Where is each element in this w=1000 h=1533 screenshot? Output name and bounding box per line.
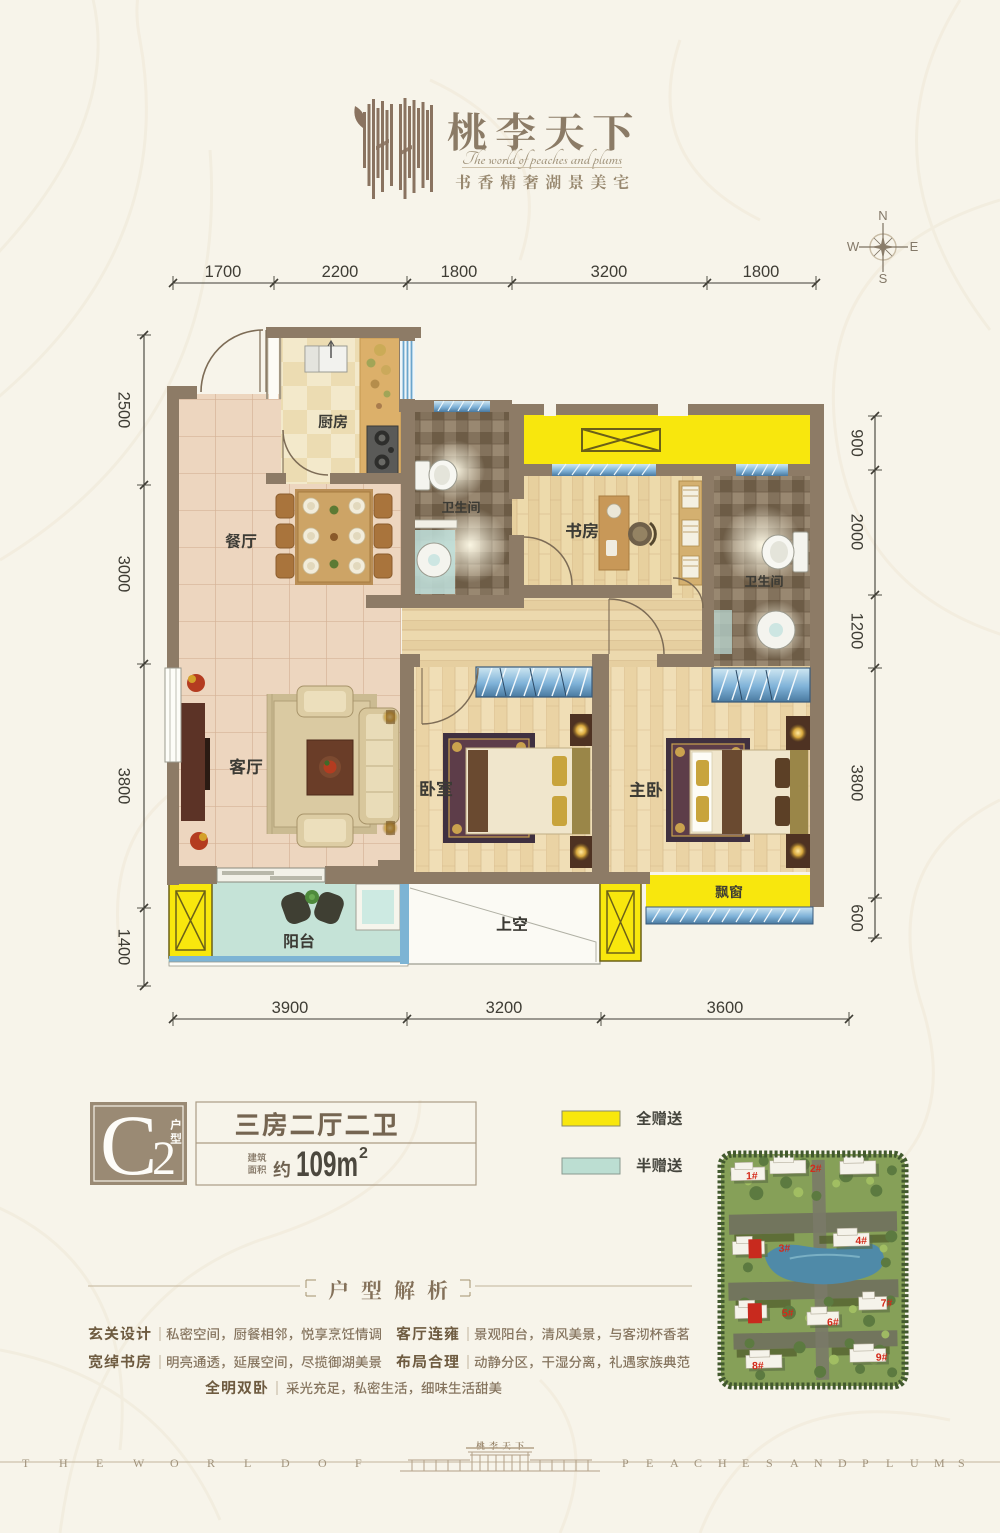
svg-text:A: A: [670, 1456, 679, 1470]
svg-text:E: E: [910, 239, 919, 254]
svg-text:3000: 3000: [115, 556, 133, 593]
svg-text:L: L: [886, 1456, 893, 1470]
svg-text:H: H: [718, 1456, 727, 1470]
svg-text:8#: 8#: [752, 1360, 764, 1372]
svg-text:2#: 2#: [810, 1163, 822, 1175]
svg-text:T: T: [22, 1456, 30, 1470]
svg-text:E: E: [742, 1456, 749, 1470]
svg-text:E: E: [646, 1456, 653, 1470]
svg-text:2: 2: [152, 1132, 176, 1185]
svg-text:C: C: [694, 1456, 702, 1470]
svg-text:R: R: [207, 1456, 215, 1470]
svg-text:9#: 9#: [876, 1351, 888, 1363]
svg-text:7#: 7#: [881, 1297, 893, 1309]
svg-text:2: 2: [359, 1145, 368, 1162]
svg-text:C: C: [100, 1097, 157, 1193]
svg-text:3800: 3800: [848, 765, 866, 802]
svg-text:600: 600: [848, 904, 866, 932]
svg-text:3200: 3200: [591, 263, 628, 281]
svg-text:A: A: [790, 1456, 799, 1470]
svg-text:1800: 1800: [441, 263, 478, 281]
svg-text:S: S: [879, 271, 888, 286]
svg-text:F: F: [355, 1456, 362, 1470]
svg-text:3#: 3#: [778, 1242, 790, 1254]
svg-text:N: N: [814, 1456, 823, 1470]
svg-text:L: L: [244, 1456, 251, 1470]
svg-text:S: S: [766, 1456, 773, 1470]
svg-text:M: M: [934, 1456, 945, 1470]
svg-text:O: O: [318, 1456, 327, 1470]
svg-text:4#: 4#: [855, 1235, 867, 1247]
svg-text:W: W: [133, 1456, 145, 1470]
svg-text:3600: 3600: [707, 999, 744, 1017]
svg-text:H: H: [59, 1456, 68, 1470]
svg-text:P: P: [622, 1456, 629, 1470]
svg-text:P: P: [862, 1456, 869, 1470]
svg-text:2000: 2000: [848, 514, 866, 551]
svg-text:1#: 1#: [746, 1170, 758, 1182]
svg-text:S: S: [958, 1456, 965, 1470]
svg-text:1800: 1800: [743, 263, 780, 281]
svg-text:O: O: [170, 1456, 179, 1470]
svg-text:E: E: [96, 1456, 103, 1470]
svg-text:3800: 3800: [115, 768, 133, 805]
svg-text:5#: 5#: [782, 1307, 794, 1319]
svg-text:U: U: [910, 1456, 919, 1470]
svg-text:1200: 1200: [848, 613, 866, 650]
svg-text:W: W: [847, 239, 860, 254]
svg-text:D: D: [281, 1456, 290, 1470]
svg-text:D: D: [838, 1456, 847, 1470]
svg-text:1400: 1400: [115, 929, 133, 966]
svg-text:1700: 1700: [205, 263, 242, 281]
svg-text:6#: 6#: [827, 1316, 839, 1328]
svg-text:2500: 2500: [115, 392, 133, 429]
svg-text:2200: 2200: [322, 263, 359, 281]
svg-text:3900: 3900: [272, 999, 309, 1017]
svg-text:N: N: [878, 208, 887, 223]
svg-text:3200: 3200: [486, 999, 523, 1017]
svg-text:109m: 109m: [296, 1145, 358, 1184]
svg-text:900: 900: [848, 429, 866, 457]
